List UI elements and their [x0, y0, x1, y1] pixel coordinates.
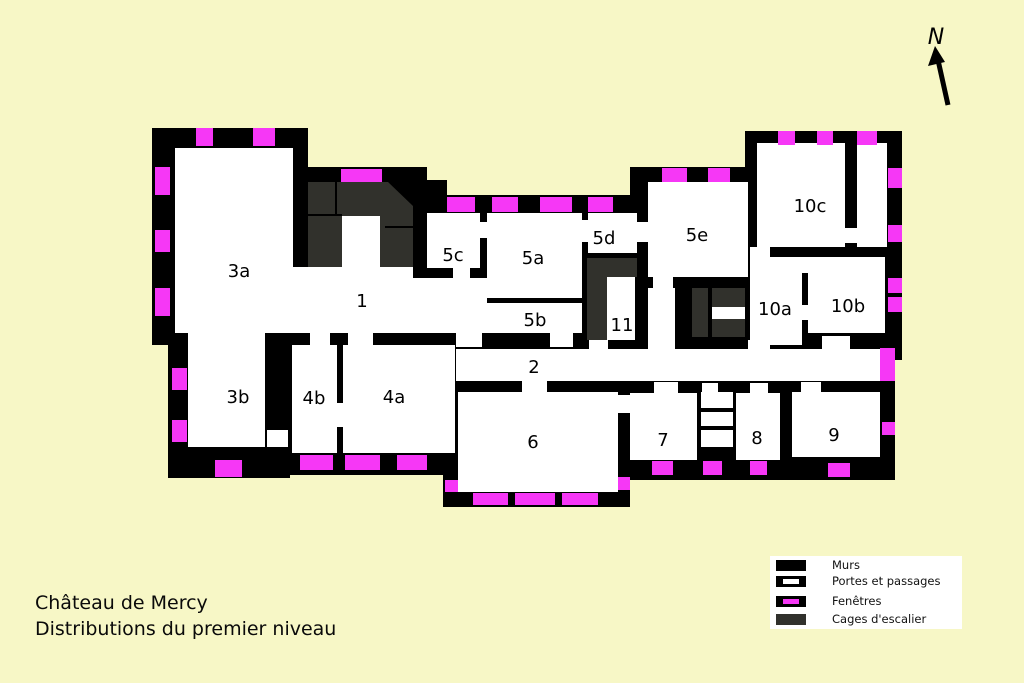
legend-item-fenetres: Fenêtres	[776, 595, 881, 607]
ladder-rail-left	[697, 392, 701, 447]
room-label-10c: 10c	[794, 196, 827, 217]
ladder-rung	[700, 426, 733, 430]
room-label-3a: 3a	[228, 261, 250, 282]
room-10c-closet-floor	[857, 143, 887, 247]
room-label-5e: 5e	[686, 225, 709, 246]
staircase-10a-landing	[712, 307, 745, 319]
room-10b-floor	[808, 257, 885, 333]
staircase-room11-side	[587, 277, 607, 340]
legend-swatch-door	[776, 576, 806, 587]
legend-swatch-door-gap	[783, 579, 799, 584]
legend-swatch-window-glass	[783, 599, 799, 604]
room-10c-floor	[757, 143, 845, 247]
map-title: Château de Mercy	[35, 590, 336, 616]
north-label: N	[928, 25, 944, 50]
room-label-6: 6	[527, 432, 538, 453]
stairwell-opening	[342, 216, 380, 267]
room-label-11: 11	[611, 315, 634, 336]
corridor-1-floor-east	[413, 278, 487, 333]
room-label-8: 8	[751, 428, 762, 449]
room-label-1: 1	[356, 291, 367, 312]
legend-label-portes: Portes et passages	[832, 574, 941, 588]
legend-label-murs: Murs	[832, 558, 860, 572]
legend: Murs Portes et passages Fenêtres Cages d…	[770, 556, 962, 629]
ladder-rail-right	[733, 392, 736, 447]
room-label-5b: 5b	[524, 310, 547, 331]
legend-label-cages: Cages d'escalier	[832, 612, 926, 626]
corridor-2-floor	[456, 349, 880, 381]
room-label-5d: 5d	[593, 228, 616, 249]
room-label-5a: 5a	[522, 248, 544, 269]
staircase-room11-top	[587, 258, 637, 277]
legend-item-cages: Cages d'escalier	[776, 613, 926, 625]
ladder-stair-floor	[700, 392, 733, 447]
legend-label-fenetres: Fenêtres	[832, 594, 881, 608]
room-label-10a: 10a	[758, 299, 792, 320]
room-label-7: 7	[657, 430, 668, 451]
room-label-4b: 4b	[303, 388, 326, 409]
legend-swatch-stair	[776, 614, 806, 625]
room-3a-floor	[175, 148, 293, 333]
legend-swatch-window	[776, 596, 806, 607]
title-block: Château de Mercy Distributions du premie…	[35, 590, 336, 642]
legend-item-portes: Portes et passages	[776, 575, 941, 587]
room-label-2: 2	[528, 357, 539, 378]
corridor-1-floor	[293, 267, 413, 333]
legend-item-murs: Murs	[776, 559, 860, 571]
ladder-rung	[700, 408, 733, 412]
room-label-4a: 4a	[383, 387, 405, 408]
room-label-10b: 10b	[831, 296, 865, 317]
map-subtitle: Distributions du premier niveau	[35, 616, 336, 642]
room-label-5c: 5c	[442, 245, 463, 266]
floor-plan-page: 3a 3b 4b 4a 1 2 5c 5a 5b 5d 11 5e 6 7 8 …	[0, 0, 1024, 683]
room-label-3b: 3b	[227, 387, 250, 408]
room-label-9: 9	[828, 425, 839, 446]
room-8-floor	[736, 393, 780, 460]
legend-swatch-wall	[776, 560, 806, 571]
corridor-mid-floor	[648, 288, 675, 349]
